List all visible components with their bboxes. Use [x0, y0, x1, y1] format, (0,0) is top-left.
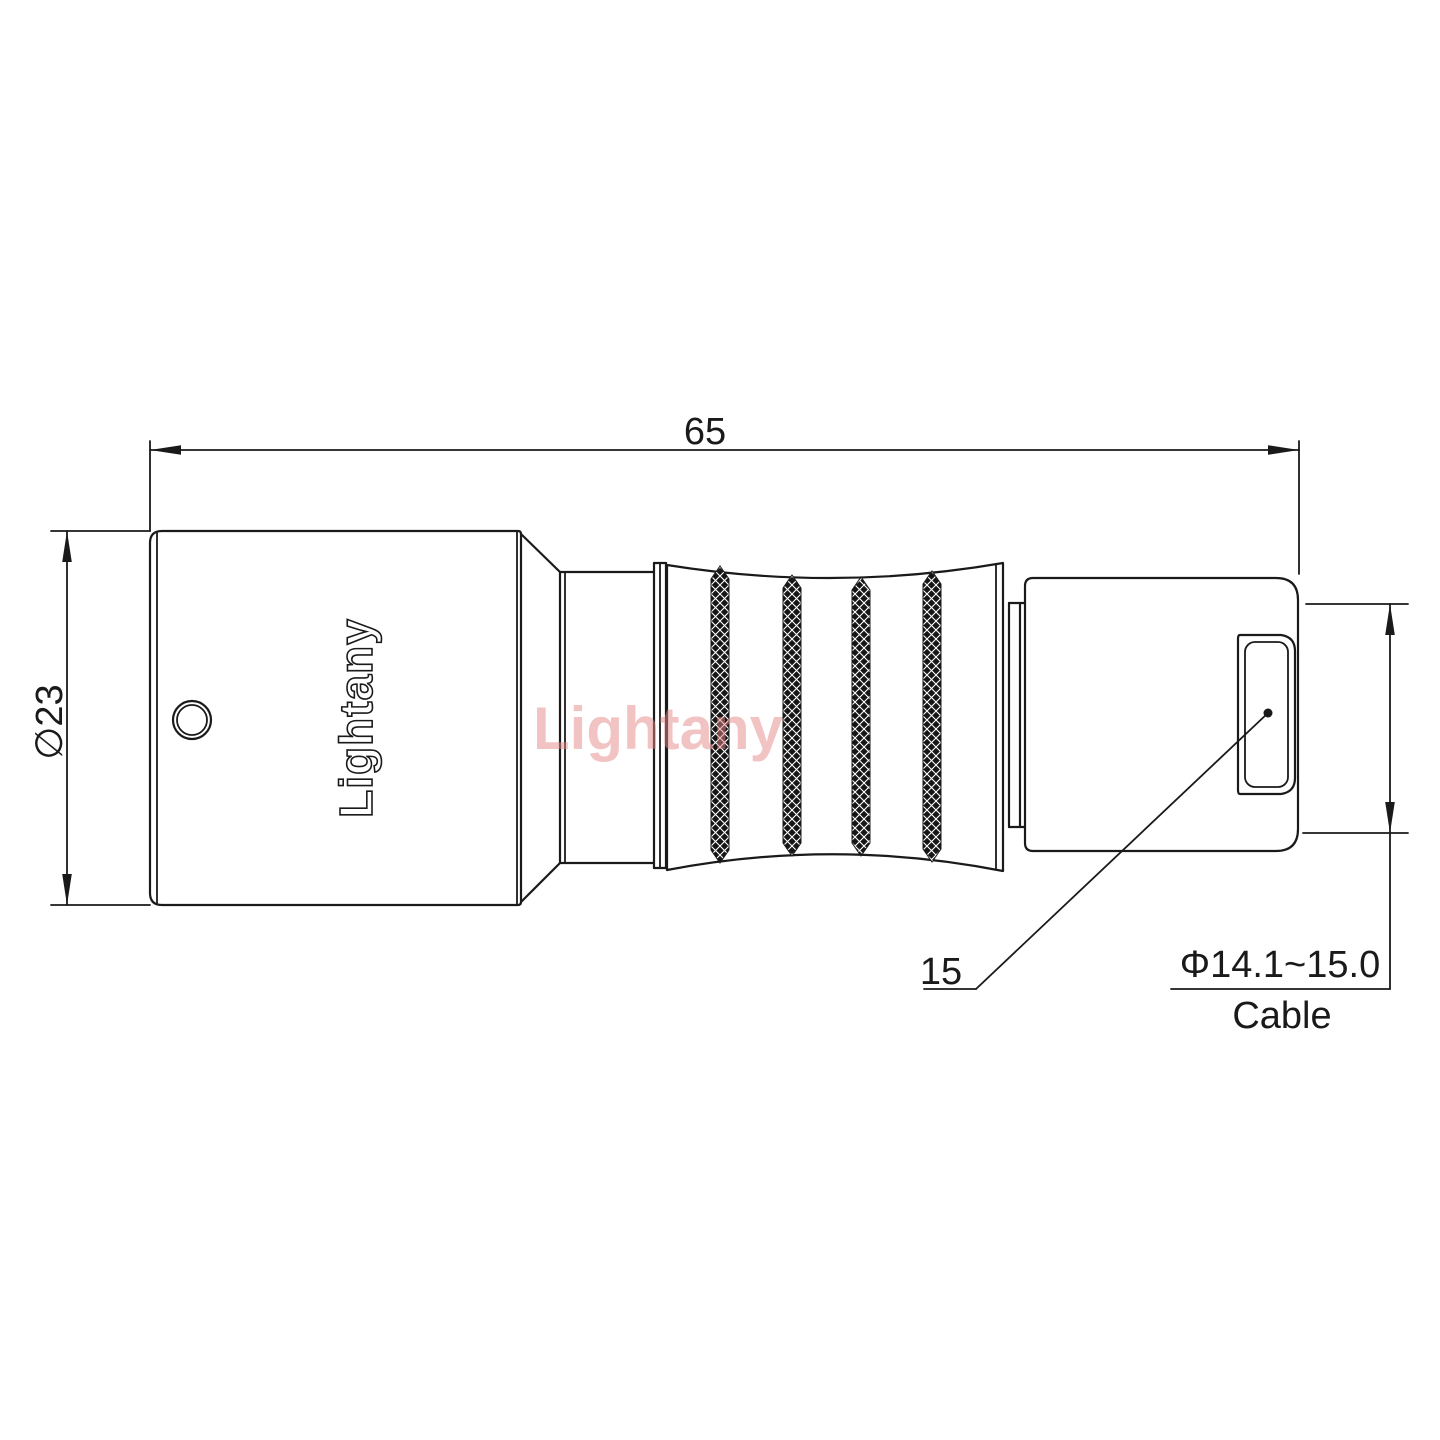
arrowhead-left [150, 445, 181, 455]
dimension-value-cable-range: Φ14.1~15.0 [1180, 944, 1380, 986]
cable-label: Cable [1232, 995, 1331, 1037]
watermark: Lightany [533, 695, 784, 762]
knurl-band [923, 571, 941, 862]
arrowhead-right [1268, 445, 1299, 455]
arrowhead-top [1385, 604, 1395, 635]
drawing-canvas: Lightany [0, 0, 1440, 1440]
taper-bottom-line [521, 863, 560, 902]
knurl-band [852, 577, 870, 856]
arrowhead-bottom [62, 874, 72, 905]
dimension-body-diameter: ∅23 [29, 531, 150, 905]
dimension-value-body-diameter: ∅23 [29, 684, 71, 759]
dimension-value-nut-size: 15 [920, 951, 962, 993]
logo-engraving: Lightany [330, 618, 382, 818]
step-ring [1009, 603, 1025, 827]
arrowhead-top [62, 531, 72, 562]
dimension-value-overall-length: 65 [684, 411, 726, 453]
knurl-band [783, 575, 801, 856]
taper-top-line [521, 534, 560, 572]
arrowhead-bottom [1385, 802, 1395, 833]
technical-drawing: Lightany [0, 0, 1440, 1440]
